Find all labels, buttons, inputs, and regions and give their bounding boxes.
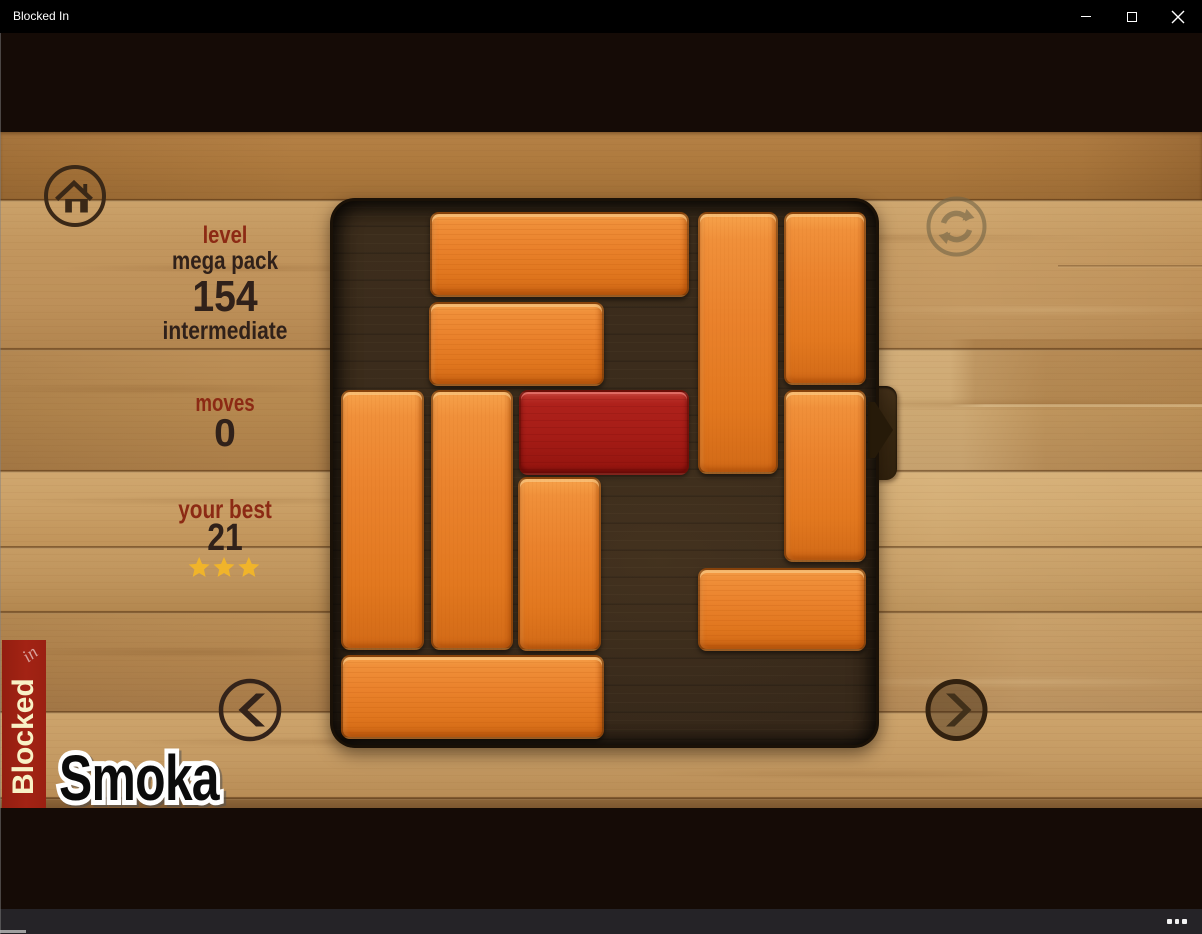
svg-text:in: in [18,642,41,666]
svg-text:Smoka: Smoka [59,743,220,814]
svg-text:Blocked: Blocked [7,678,40,795]
